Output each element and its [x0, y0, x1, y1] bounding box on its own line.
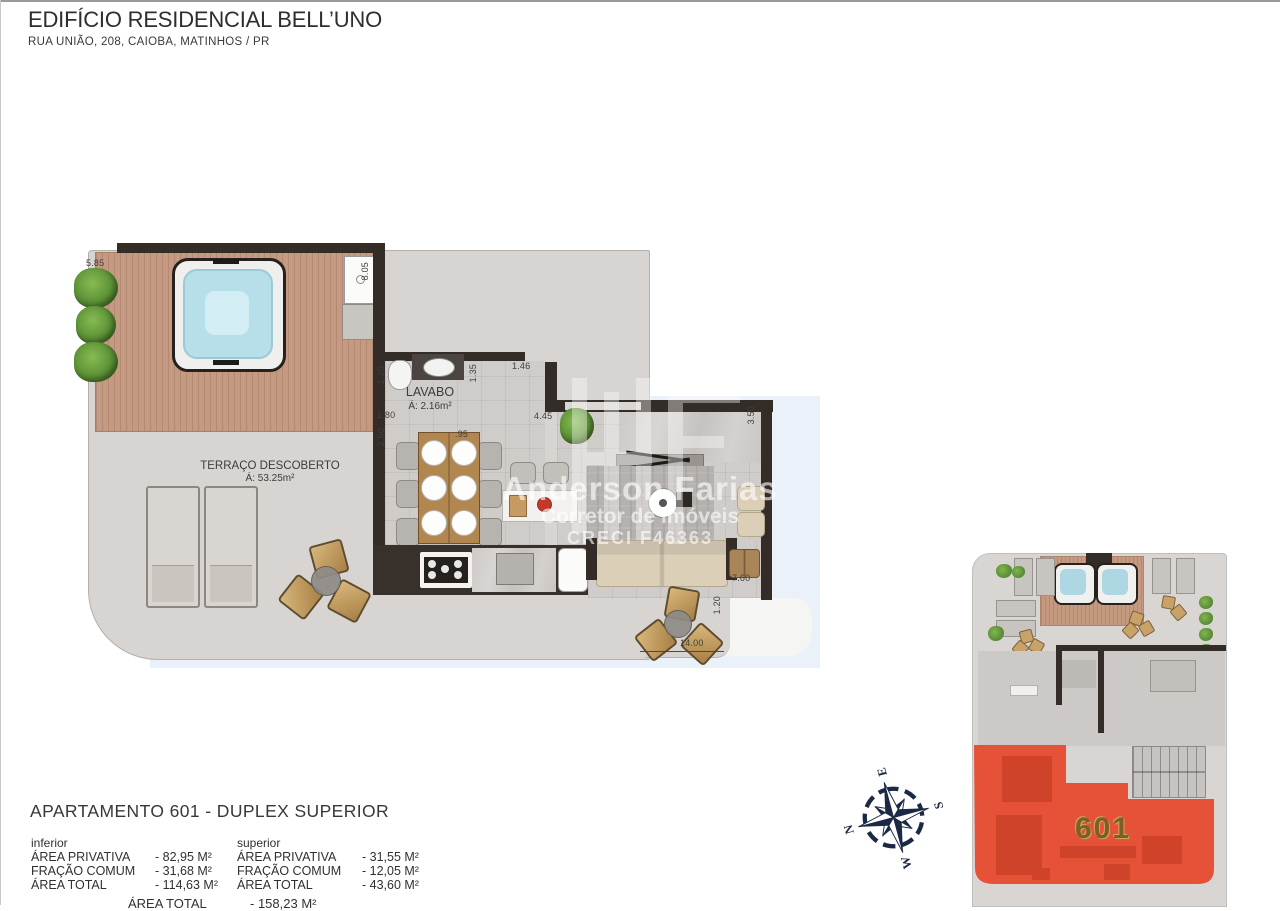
coffee-table-icon: [648, 488, 678, 518]
dim-label: 14.00: [680, 638, 704, 648]
plant-icon: [74, 342, 118, 382]
room-name: TERRAÇO DESCOBERTO: [195, 459, 345, 473]
burner-icon: [441, 565, 449, 573]
lavabo-vanity: [412, 354, 464, 380]
plate-icon: [451, 440, 477, 466]
dim-label: 1.46: [512, 361, 530, 371]
area-name: ÁREA TOTAL: [237, 878, 313, 892]
room-name: LAVABO: [395, 385, 465, 401]
plate-icon: [421, 510, 447, 536]
sofa-end-table: [586, 538, 597, 580]
patio-table-icon: [664, 610, 692, 638]
room-label-terraco: TERRAÇO DESCOBERTO Á: 53.25m²: [195, 459, 345, 486]
area-value: - 31,55 M²: [362, 850, 419, 864]
area-name: ÁREA TOTAL: [31, 878, 107, 892]
compass-letter-s: S: [931, 800, 946, 810]
dining-chair: [478, 518, 502, 546]
armchair: [737, 512, 765, 537]
compass-rose-icon: N E S W: [836, 760, 951, 875]
sun-lounger: [146, 486, 200, 608]
sun-lounger: [204, 486, 258, 608]
wall: [117, 243, 385, 253]
hot-tub-rim-mark: [213, 360, 239, 365]
dim-label: 7.60: [732, 573, 750, 583]
red-bowl-icon: [537, 497, 552, 512]
hot-tub-rim-mark: [213, 259, 239, 264]
room-area: Á: 53.25m²: [195, 473, 345, 486]
plate-icon: [451, 475, 477, 501]
area-value: - 31,68 M²: [155, 864, 212, 878]
dim-label: 1.35: [468, 364, 478, 382]
dim-label: 4.45: [534, 411, 552, 421]
dim-label: 2.50: [376, 428, 386, 446]
kitchen-island: [502, 490, 578, 522]
sofa: [596, 540, 728, 587]
kitchen-counter: [373, 545, 588, 595]
burner-icon: [454, 560, 462, 568]
plate-icon: [421, 475, 447, 501]
page-left-border: [0, 0, 1, 905]
dimension-line: [640, 651, 724, 652]
compass-letter-w: W: [898, 854, 915, 870]
side-table-dark: [676, 492, 692, 507]
dining-chair: [396, 518, 420, 546]
total-area-name: ÁREA TOTAL: [128, 896, 207, 911]
burner-icon: [428, 560, 436, 568]
area-value: - 43,60 M²: [362, 878, 419, 892]
dining-chair: [478, 480, 502, 508]
header: EDIFÍCIO RESIDENCIAL BELL’UNO RUA UNIÃO,…: [28, 7, 382, 48]
column-label-superior: superior: [237, 836, 280, 850]
coffee-table-center: [659, 499, 667, 507]
patio-table-icon: [311, 566, 341, 596]
cooktop-icon: [420, 552, 472, 588]
area-name: ÁREA PRIVATIVA: [31, 850, 130, 864]
fridge-icon: [558, 548, 588, 592]
chair-group: [280, 540, 370, 620]
wall: [373, 243, 385, 367]
area-name: FRAÇÃO COMUM: [237, 864, 341, 878]
compass-letter-n: N: [841, 823, 857, 835]
dim-label: 1.20: [376, 366, 386, 384]
compass-letter-e: E: [874, 766, 890, 778]
wall: [373, 362, 385, 548]
page-top-border: [0, 0, 1280, 2]
area-value: - 12,05 M²: [362, 864, 419, 878]
area-name: ÁREA PRIVATIVA: [237, 850, 336, 864]
plate-icon: [421, 440, 447, 466]
plate-icon: [451, 510, 477, 536]
cutting-board-icon: [509, 495, 527, 517]
dining-chair: [396, 442, 420, 470]
dim-label: .95: [455, 429, 468, 439]
page: { "header": { "title": "EDIFÍCIO RESIDEN…: [0, 0, 1280, 905]
dim-label: 5.85: [86, 258, 104, 268]
lounger-pad: [152, 565, 194, 602]
sink-icon: [423, 358, 455, 377]
column-label-inferior: inferior: [31, 836, 68, 850]
plant-icon: [560, 408, 594, 444]
hot-tub-icon: [172, 258, 286, 372]
stool: [543, 462, 569, 484]
info-heading: APARTAMENTO 601 - DUPLEX SUPERIOR: [30, 801, 389, 822]
dining-chair: [478, 442, 502, 470]
stool: [510, 462, 536, 484]
dim-label: 1.80: [377, 410, 395, 420]
armchair: [737, 486, 765, 511]
room-area: Á: 2.16m²: [395, 401, 465, 414]
lounger-pad: [210, 565, 252, 602]
unit-601-highlight: [972, 553, 1225, 905]
plant-icon: [76, 306, 116, 344]
room-label-lavabo: LAVABO Á: 2.16m²: [395, 385, 465, 413]
burner-icon: [454, 571, 462, 579]
sink-icon: [496, 553, 534, 585]
dim-label: 1.20: [712, 596, 722, 614]
plant-icon: [74, 268, 118, 308]
outside-white-patio: [726, 598, 812, 656]
burner-icon: [428, 571, 436, 579]
page-subtitle: RUA UNIÃO, 208, CAIOBA, MATINHOS / PR: [28, 36, 382, 48]
unit-label: 601: [1075, 812, 1155, 846]
total-area-value: - 158,23 M²: [250, 896, 316, 911]
dim-label: 8.05: [360, 262, 370, 280]
dim-label: 3.50: [746, 406, 756, 424]
hot-tub-seat: [205, 291, 249, 335]
dining-chair: [396, 480, 420, 508]
page-title: EDIFÍCIO RESIDENCIAL BELL’UNO: [28, 7, 382, 33]
area-value: - 114,63 M²: [155, 878, 218, 892]
area-value: - 82,95 M²: [155, 850, 212, 864]
area-name: FRAÇÃO COMUM: [31, 864, 135, 878]
